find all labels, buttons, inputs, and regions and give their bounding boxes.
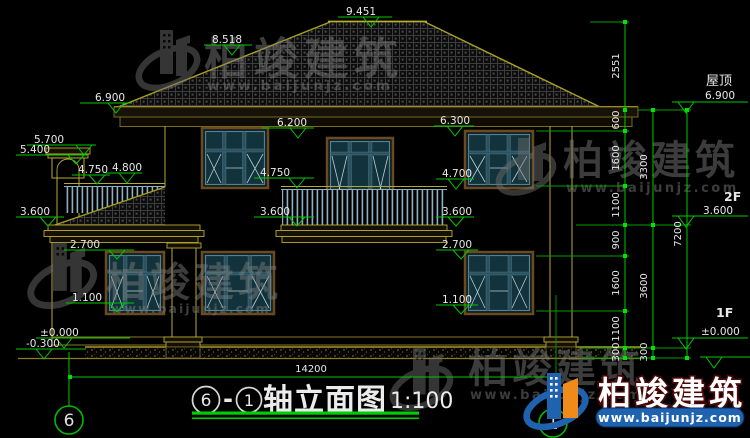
watermark-url: www.baijunjz.com: [566, 181, 739, 196]
elev-value: 6.200: [277, 117, 307, 129]
level-label: 1F: [716, 305, 733, 320]
watermark-url: www.baijunjz.com: [207, 78, 393, 94]
level-label: 2F: [724, 189, 741, 204]
elev-value: 6.900: [95, 92, 125, 104]
level-value: ±0.000: [701, 326, 740, 338]
elev-value: 1.100: [442, 294, 472, 306]
watermark-name: 柏竣建筑: [563, 138, 739, 184]
dim-value: 7200: [673, 221, 684, 246]
elev-value: 3.600: [20, 206, 50, 218]
eave: [114, 107, 638, 127]
elev-value: -0.300: [26, 338, 60, 350]
dim-value: 3600: [639, 273, 650, 298]
cad-elevation-drawing: 柏竣建筑 www.baijunjz.com 柏竣建筑 www.baijunjz.…: [0, 0, 750, 438]
elev-value: 4.800: [112, 162, 142, 174]
axis-number: 6: [64, 411, 75, 431]
dim-value: 900: [611, 230, 622, 249]
title-bubble-left: 6: [201, 391, 212, 411]
brand-name: 柏竣建筑: [598, 374, 746, 413]
dim-value: 600: [611, 110, 622, 129]
elev-value: 4.750: [78, 164, 108, 176]
level-value: 3.600: [703, 205, 733, 217]
elev-value: 8.518: [212, 34, 242, 46]
watermark-name: 柏竣建筑: [106, 260, 282, 306]
elev-value: 1.100: [72, 292, 102, 304]
dim-value: 14200: [295, 364, 327, 375]
window-2f-left: [202, 128, 268, 188]
elev-value: 2.700: [442, 239, 472, 251]
dim-value: 1100: [611, 192, 622, 217]
drawing-canvas: 柏竣建筑 www.baijunjz.com 柏竣建筑 www.baijunjz.…: [0, 0, 750, 438]
elev-value: 4.750: [260, 167, 290, 179]
title-separator: -: [223, 385, 233, 413]
dim-value: 2551: [611, 53, 622, 78]
elev-value: 3.600: [260, 206, 290, 218]
dim-value: 300: [611, 342, 622, 361]
elev-value: 2.700: [70, 239, 100, 251]
dim-value: 1600: [611, 270, 622, 295]
level-value: 6.900: [705, 90, 735, 102]
elev-value: 9.451: [346, 6, 376, 18]
dim-value: 300: [639, 342, 650, 361]
brand-url: www.baijunjz.com: [598, 410, 742, 425]
dim-value: 1100: [611, 316, 622, 341]
title-bubble-right: 1: [244, 391, 254, 410]
elev-value: 4.700: [442, 168, 472, 180]
elev-value: 5.400: [20, 144, 50, 156]
dim-value: 3300: [639, 154, 650, 179]
drawing-scale: 1:100: [390, 389, 453, 414]
brand-logo: 柏竣建筑 www.baijunjz.com: [521, 373, 746, 434]
title-block: 6 - 1 轴立面图 1:100: [192, 383, 453, 419]
balcony: [276, 187, 452, 243]
level-label: 屋顶: [706, 74, 732, 89]
watermark-url: www.baijunjz.com: [111, 301, 271, 316]
elev-value: 6.300: [440, 115, 470, 127]
elev-value: 3.600: [442, 206, 472, 218]
dim-value: 1600: [611, 145, 622, 170]
